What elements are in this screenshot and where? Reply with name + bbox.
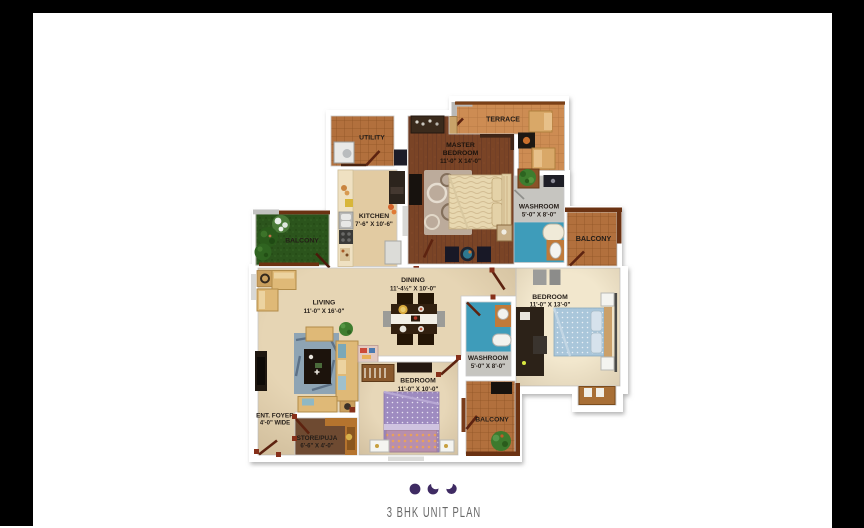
svg-text:7'-6" X 10'-6": 7'-6" X 10'-6" <box>355 221 393 228</box>
svg-text:11'-0" X 10'-0": 11'-0" X 10'-0" <box>398 386 439 393</box>
svg-text:11'-4½" X 10'-0": 11'-4½" X 10'-0" <box>390 286 436 293</box>
svg-text:BALCONY: BALCONY <box>285 238 319 245</box>
svg-text:6'-6" X 4'-0": 6'-6" X 4'-0" <box>300 444 333 450</box>
svg-text:11'-0" X 16'-0": 11'-0" X 16'-0" <box>304 308 345 315</box>
svg-text:BEDROOM: BEDROOM <box>532 294 568 301</box>
svg-text:3 BHK UNIT PLAN: 3 BHK UNIT PLAN <box>387 504 482 521</box>
svg-text:LIVING: LIVING <box>313 300 336 307</box>
svg-text:11'-0" X 13'-0": 11'-0" X 13'-0" <box>530 302 571 309</box>
svg-text:WASHROOM: WASHROOM <box>519 204 560 211</box>
svg-text:TERRACE: TERRACE <box>486 117 520 124</box>
svg-text:BALCONY: BALCONY <box>576 234 612 243</box>
svg-text:4'-0" WIDE: 4'-0" WIDE <box>260 421 290 427</box>
svg-text:ENT. FOYER: ENT. FOYER <box>256 413 294 420</box>
svg-text:BALCONY: BALCONY <box>475 417 509 424</box>
svg-text:DINING: DINING <box>401 277 425 284</box>
svg-text:BEDROOM: BEDROOM <box>400 378 436 385</box>
svg-text:5'-0" X 8'-0": 5'-0" X 8'-0" <box>471 363 505 370</box>
svg-text:5'-0" X 8'-0": 5'-0" X 8'-0" <box>522 212 556 219</box>
svg-text:UTILITY: UTILITY <box>359 135 385 142</box>
svg-text:MASTER: MASTER <box>446 142 475 149</box>
svg-text:WASHROOM: WASHROOM <box>468 355 509 362</box>
svg-text:11'-0" X 14'-0": 11'-0" X 14'-0" <box>440 158 481 165</box>
svg-text:STORE/PUJA: STORE/PUJA <box>297 435 338 442</box>
svg-text:BEDROOM: BEDROOM <box>443 150 479 157</box>
svg-text:KITCHEN: KITCHEN <box>359 213 389 220</box>
